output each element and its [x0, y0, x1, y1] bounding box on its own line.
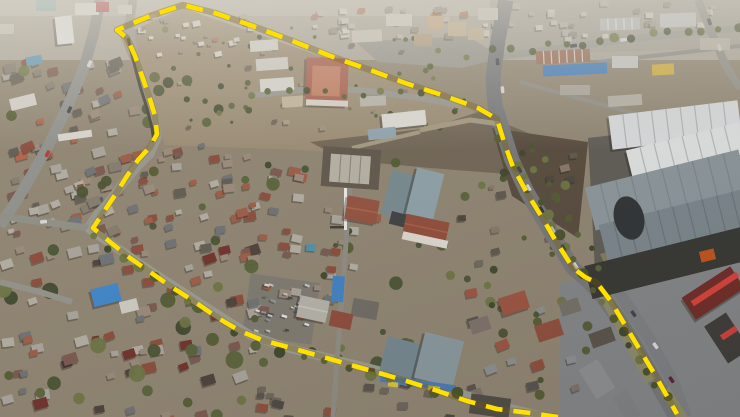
renewal-zone-boundary-line: [0, 0, 740, 417]
aerial-photo: [0, 0, 740, 417]
